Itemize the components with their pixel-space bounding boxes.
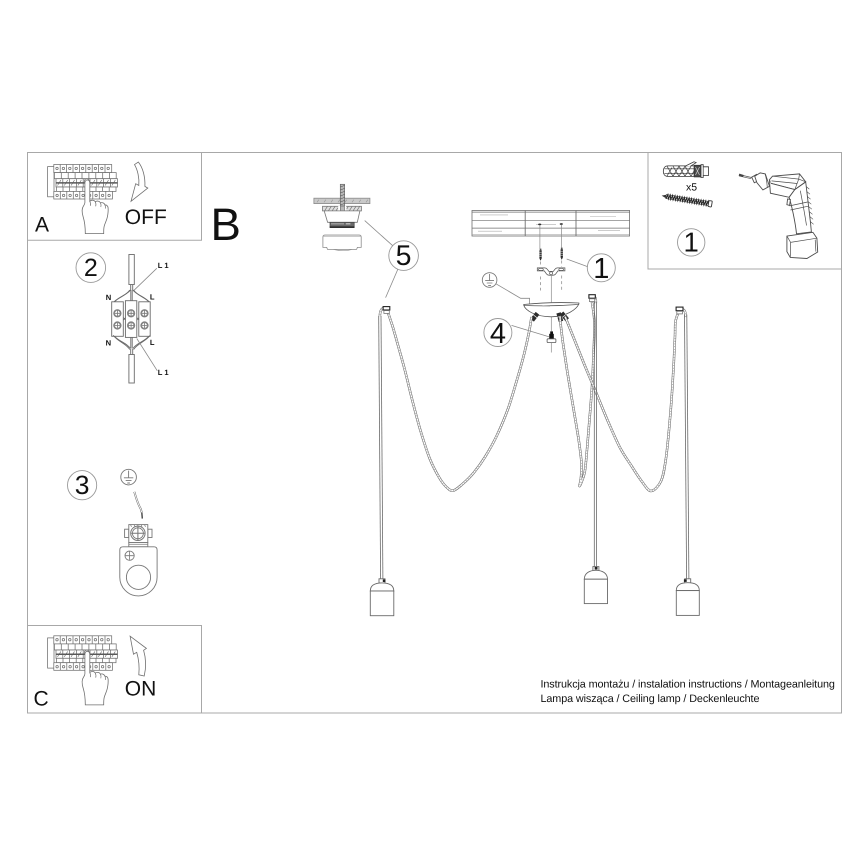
svg-text:3: 3 bbox=[75, 470, 90, 500]
svg-text:1: 1 bbox=[684, 227, 699, 258]
svg-text:Instrukcja montażu / instalati: Instrukcja montażu / instalation instruc… bbox=[541, 678, 835, 690]
svg-text:5: 5 bbox=[396, 240, 412, 272]
svg-text:L 1: L 1 bbox=[158, 261, 170, 270]
svg-text:C: C bbox=[34, 688, 49, 711]
svg-text:B: B bbox=[211, 199, 241, 250]
svg-text:1: 1 bbox=[593, 253, 609, 285]
svg-text:L 1: L 1 bbox=[158, 368, 170, 377]
svg-text:4: 4 bbox=[490, 318, 506, 350]
svg-text:L: L bbox=[150, 338, 155, 347]
svg-text:OFF: OFF bbox=[125, 206, 167, 229]
svg-text:Lampa wisząca / Ceiling lamp /: Lampa wisząca / Ceiling lamp / Deckenleu… bbox=[541, 693, 760, 705]
svg-text:L: L bbox=[150, 293, 155, 302]
svg-text:ON: ON bbox=[125, 677, 157, 700]
svg-text:N: N bbox=[106, 339, 111, 348]
svg-text:N: N bbox=[106, 293, 111, 302]
svg-text:A: A bbox=[35, 214, 49, 237]
svg-text:2: 2 bbox=[84, 254, 98, 282]
svg-text:x5: x5 bbox=[686, 181, 697, 193]
